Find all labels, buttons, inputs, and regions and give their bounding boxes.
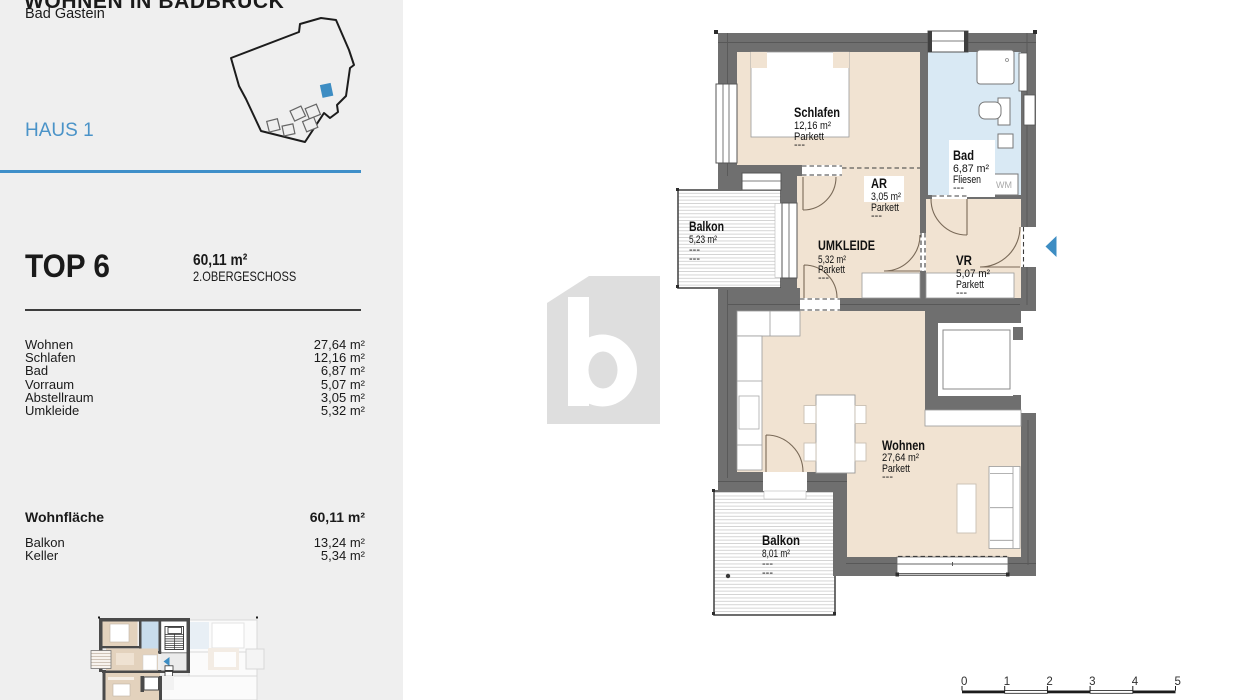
svg-text:3: 3 [1089,676,1095,688]
svg-text:---: --- [871,210,882,222]
svg-text:Wohnen: Wohnen [882,438,925,453]
svg-text:2: 2 [1046,676,1052,688]
svg-text:---: --- [956,287,967,299]
svg-text:Schlafen: Schlafen [794,105,840,120]
svg-text:AR: AR [871,176,887,191]
svg-text:---: --- [953,182,964,194]
svg-text:---: --- [762,567,773,579]
svg-text:4: 4 [1132,676,1139,688]
svg-text:---: --- [689,253,700,265]
svg-text:VR: VR [956,253,972,268]
svg-text:WM: WM [996,180,1012,190]
svg-text:1: 1 [1004,676,1010,688]
svg-text:Balkon: Balkon [762,533,800,548]
svg-text:5: 5 [1175,676,1181,688]
svg-text:---: --- [818,272,829,284]
svg-text:Balkon: Balkon [689,219,724,234]
svg-text:UMKLEIDE: UMKLEIDE [818,237,875,253]
svg-text:---: --- [882,471,893,483]
svg-text:Bad: Bad [953,148,974,163]
svg-text:---: --- [794,139,805,151]
svg-text:0: 0 [961,676,967,688]
